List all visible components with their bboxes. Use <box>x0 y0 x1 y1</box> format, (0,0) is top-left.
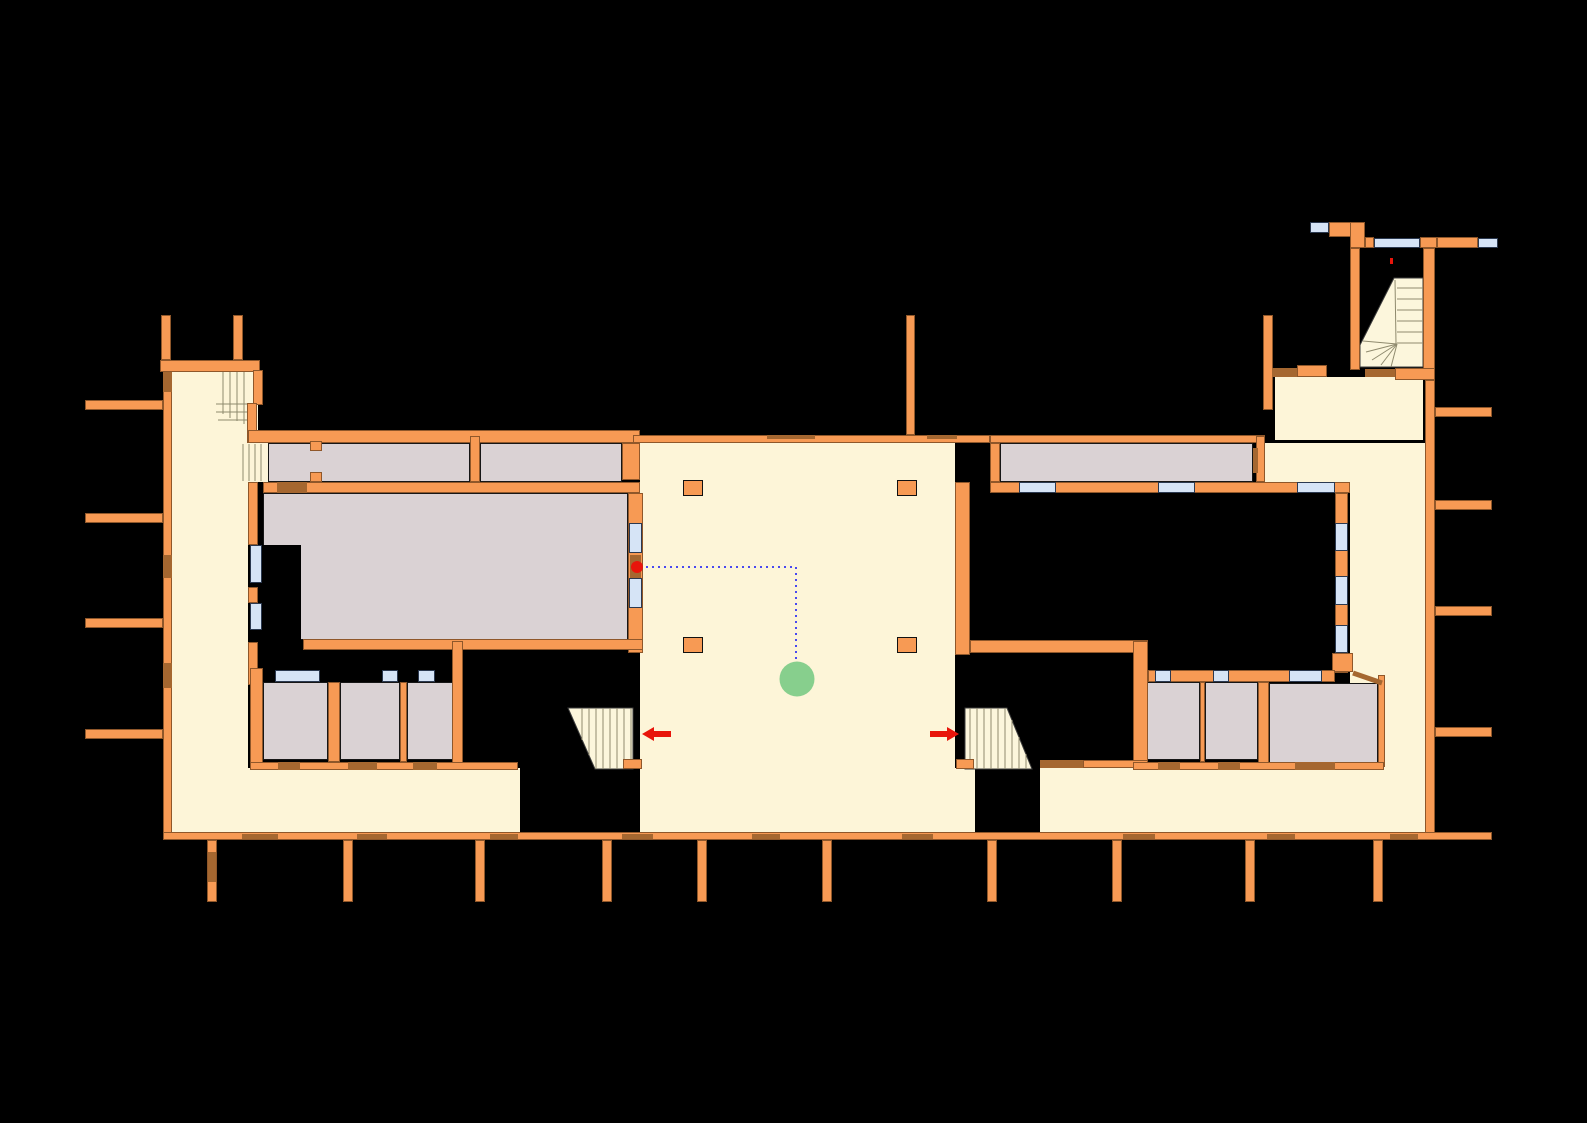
route-path <box>646 567 796 660</box>
destination-dot <box>631 561 643 573</box>
annotations-layer <box>0 0 1587 1123</box>
stairwell-red-mark <box>1390 258 1393 264</box>
exit-arrow-right-icon[interactable] <box>930 727 959 741</box>
floor-plan: Зала 6 за ет. III за ет. III <box>0 0 1587 1123</box>
exit-arrow-left-icon[interactable] <box>642 727 671 741</box>
corner-wall-diagonal <box>1353 673 1382 683</box>
you-are-here-marker <box>780 662 815 697</box>
